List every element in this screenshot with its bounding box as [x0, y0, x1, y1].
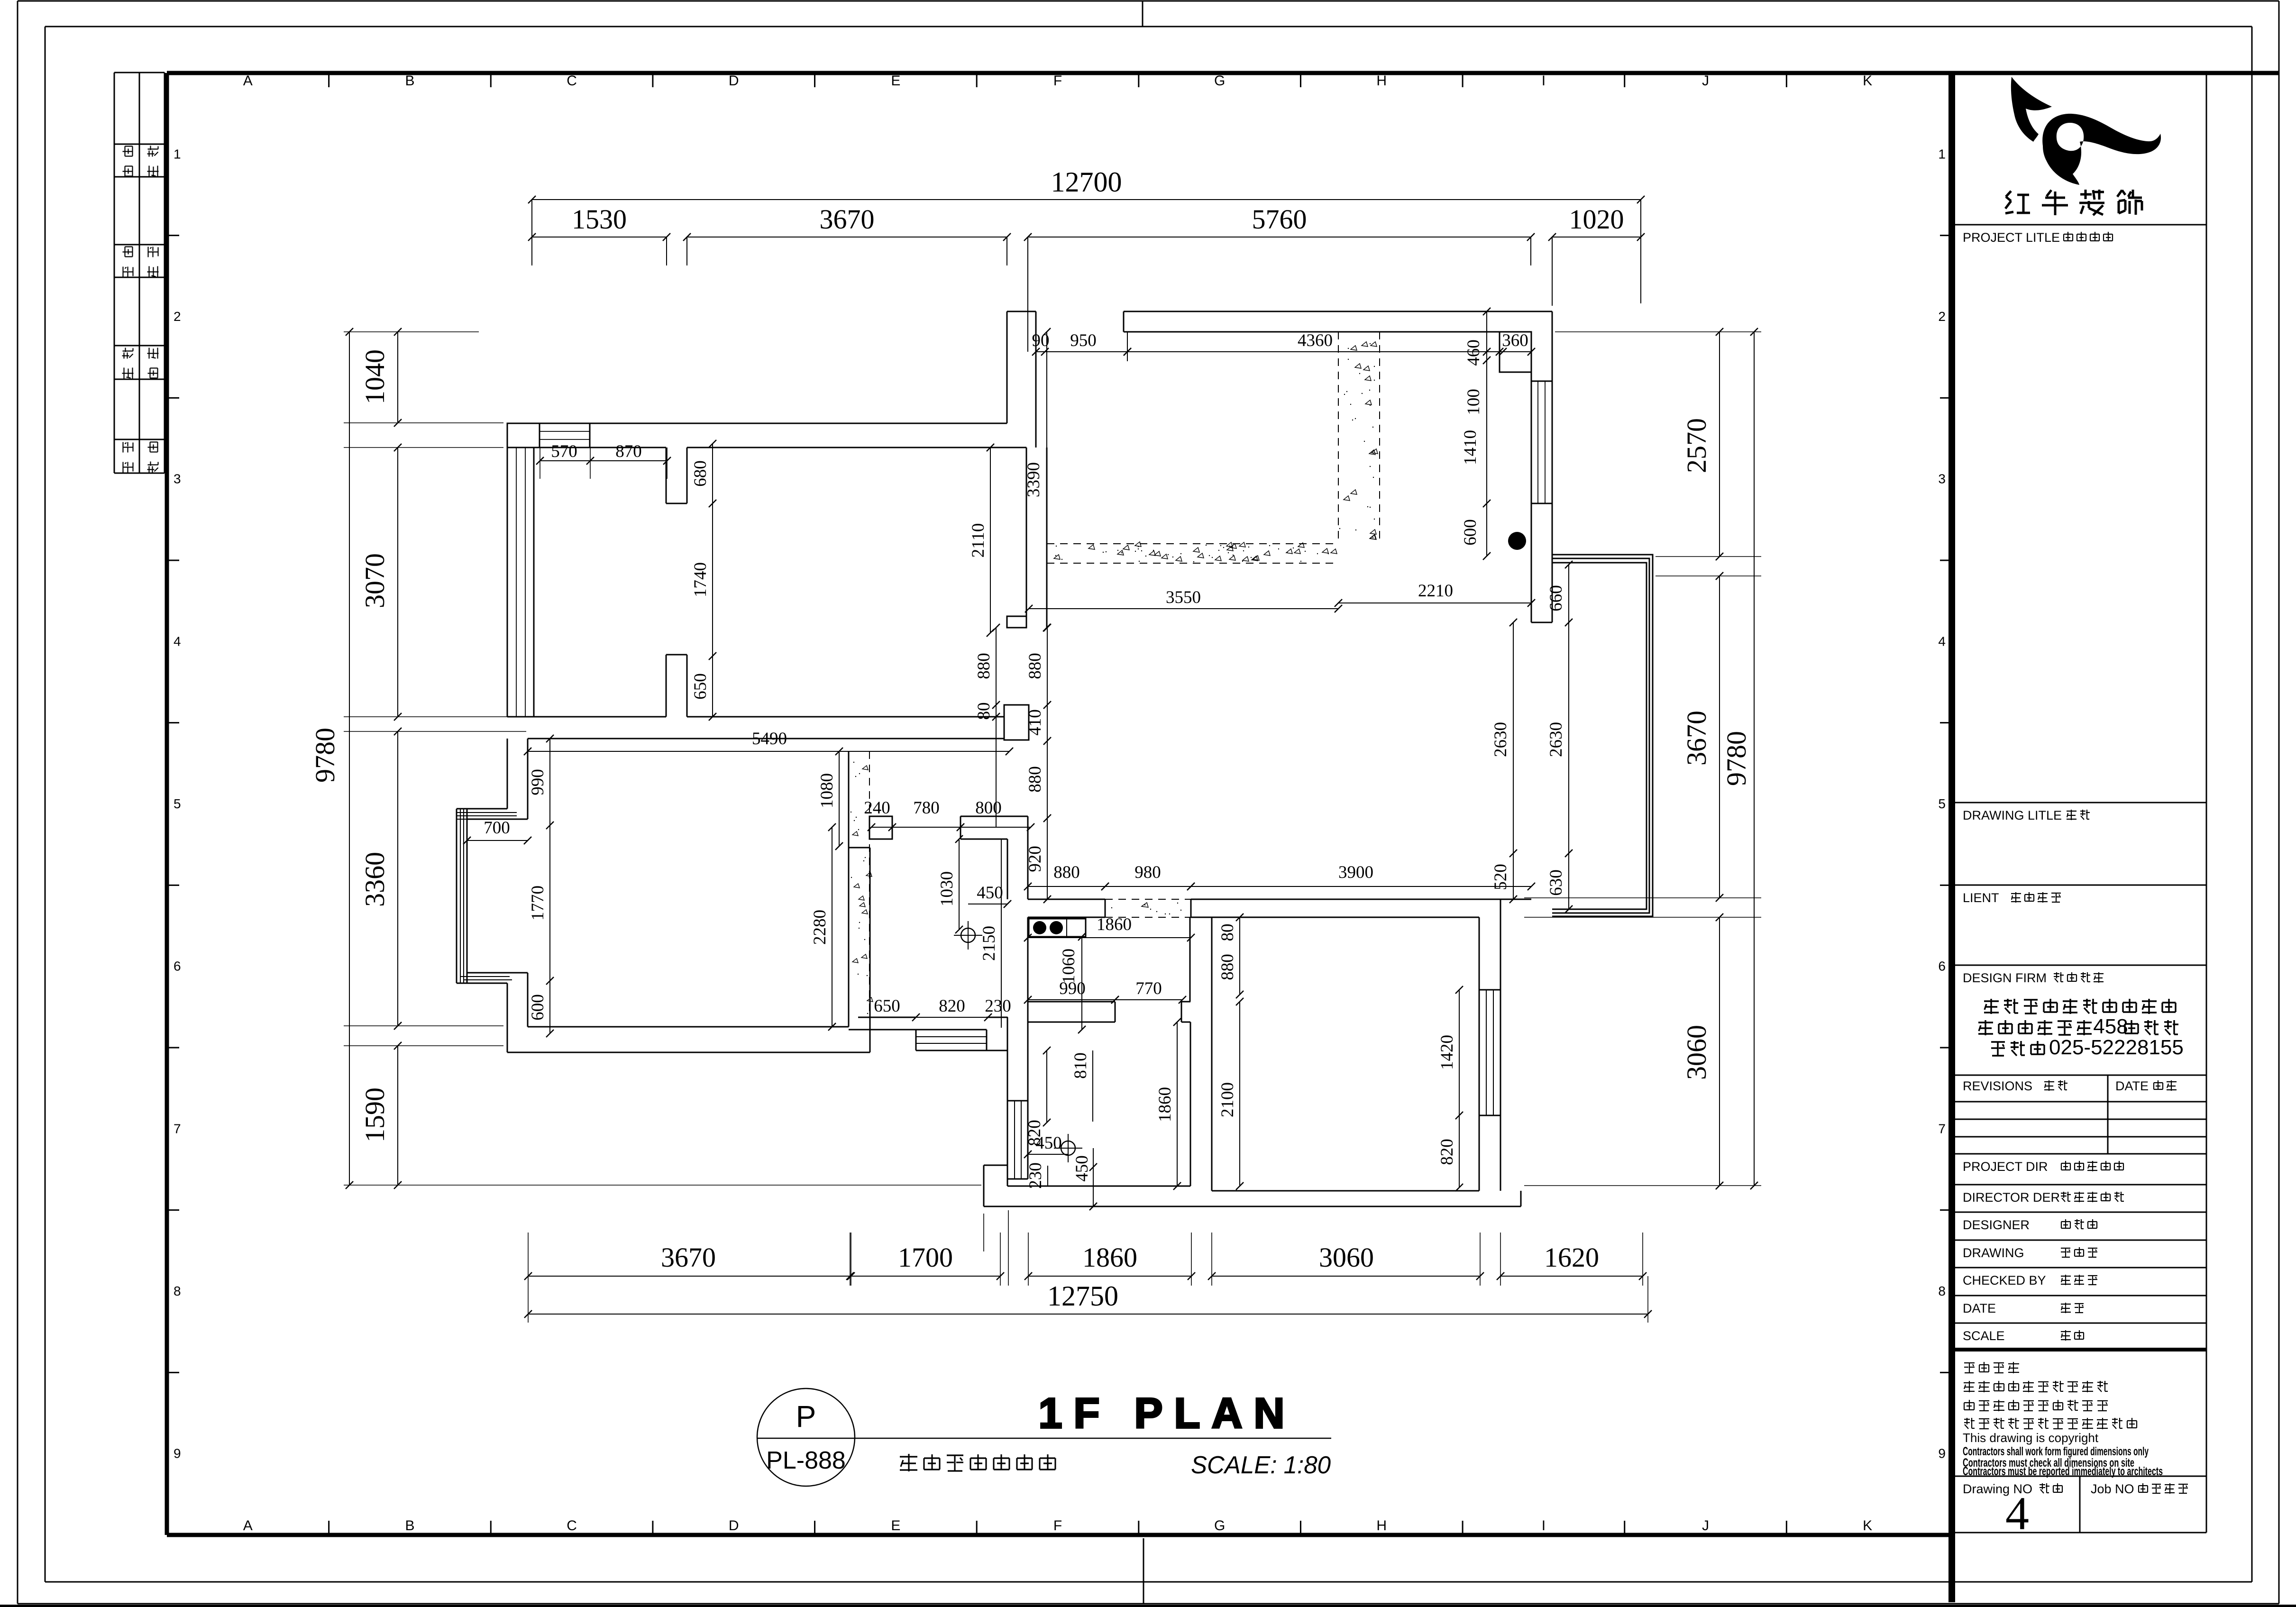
svg-text:650: 650: [874, 996, 900, 1016]
svg-text:1860: 1860: [1155, 1087, 1175, 1122]
svg-text:P: P: [796, 1399, 816, 1434]
svg-text:100: 100: [1464, 389, 1483, 415]
svg-text:12700: 12700: [1051, 166, 1122, 198]
svg-text:9780: 9780: [1721, 731, 1752, 786]
svg-text:4360: 4360: [1298, 331, 1333, 350]
svg-text:1860: 1860: [1082, 1242, 1137, 1273]
svg-text:LIENT: LIENT: [1963, 891, 1999, 905]
svg-text:PROJECT LITLE: PROJECT LITLE: [1963, 230, 2060, 245]
svg-text:3670: 3670: [661, 1242, 716, 1273]
svg-text:DESIGN FIRM: DESIGN FIRM: [1963, 971, 2047, 985]
svg-text:F: F: [1053, 1518, 1062, 1534]
svg-text:410: 410: [1025, 709, 1045, 736]
svg-text:B: B: [405, 73, 414, 89]
svg-text:2630: 2630: [1491, 722, 1510, 757]
svg-text:SCALE: SCALE: [1963, 1329, 2005, 1343]
svg-text:3060: 3060: [1681, 1025, 1712, 1080]
svg-text:600: 600: [1461, 519, 1480, 546]
svg-text:PROJECT DIR: PROJECT DIR: [1963, 1160, 2048, 1174]
svg-text:880: 880: [1218, 954, 1237, 980]
svg-text:Contractors must be reported i: Contractors must be reported immediately…: [1963, 1465, 2163, 1478]
svg-text:DESIGNER: DESIGNER: [1963, 1218, 2030, 1232]
svg-text:1420: 1420: [1437, 1035, 1457, 1070]
svg-text:C: C: [567, 73, 577, 89]
svg-text:D: D: [729, 1518, 739, 1534]
svg-text:6: 6: [1938, 959, 1946, 974]
svg-text:780: 780: [913, 798, 940, 818]
svg-text:J: J: [1702, 73, 1709, 89]
svg-text:800: 800: [975, 798, 1002, 818]
svg-text:1860: 1860: [1097, 915, 1132, 934]
svg-text:1F PLAN: 1F PLAN: [1038, 1390, 1296, 1437]
svg-text:980: 980: [1134, 863, 1161, 882]
svg-text:PL-888: PL-888: [766, 1447, 846, 1474]
svg-text:G: G: [1214, 1518, 1225, 1534]
svg-text:DRAWING: DRAWING: [1963, 1246, 2024, 1260]
svg-text:1740: 1740: [691, 562, 710, 597]
svg-text:450: 450: [1035, 1133, 1062, 1153]
svg-text:990: 990: [1059, 979, 1086, 998]
svg-text:2100: 2100: [1218, 1082, 1237, 1117]
svg-text:3: 3: [1938, 472, 1946, 486]
svg-text:2: 2: [174, 309, 181, 324]
svg-text:1530: 1530: [572, 204, 627, 235]
svg-text:3390: 3390: [1024, 462, 1043, 497]
svg-text:3070: 3070: [359, 553, 390, 608]
svg-text:570: 570: [551, 442, 577, 461]
svg-text:1080: 1080: [817, 773, 837, 808]
svg-text:025-52228155: 025-52228155: [2049, 1036, 2184, 1059]
svg-text:360: 360: [1502, 331, 1528, 350]
svg-text:B: B: [405, 1518, 414, 1534]
svg-text:6: 6: [174, 959, 181, 974]
svg-text:DIRECTOR DER: DIRECTOR DER: [1963, 1190, 2060, 1205]
svg-text:1060: 1060: [1059, 949, 1079, 984]
svg-text:DATE: DATE: [1963, 1301, 1996, 1315]
svg-text:4: 4: [174, 634, 181, 648]
svg-text:Job NO: Job NO: [2091, 1482, 2134, 1496]
svg-text:450: 450: [977, 883, 1003, 903]
svg-text:920: 920: [1025, 846, 1045, 872]
svg-text:450: 450: [1072, 1155, 1092, 1182]
svg-text:F: F: [1053, 73, 1062, 89]
svg-text:3: 3: [174, 472, 181, 486]
svg-text:2150: 2150: [979, 926, 999, 961]
svg-text:1410: 1410: [1461, 430, 1480, 465]
svg-text:8: 8: [174, 1284, 181, 1298]
svg-text:230: 230: [985, 996, 1011, 1016]
svg-text:5: 5: [1938, 796, 1946, 811]
svg-text:G: G: [1214, 73, 1225, 89]
svg-text:2280: 2280: [810, 910, 830, 945]
svg-text:80: 80: [974, 703, 994, 720]
svg-text:1700: 1700: [898, 1242, 953, 1273]
svg-text:12750: 12750: [1047, 1280, 1118, 1312]
svg-text:9: 9: [1938, 1446, 1946, 1461]
svg-text:820: 820: [1437, 1139, 1457, 1165]
svg-text:1020: 1020: [1569, 204, 1624, 235]
svg-text:630: 630: [1546, 869, 1566, 896]
svg-text:J: J: [1702, 1518, 1709, 1534]
svg-text:7: 7: [1938, 1121, 1946, 1136]
svg-text:460: 460: [1464, 339, 1483, 366]
svg-text:600: 600: [528, 994, 548, 1021]
svg-text:E: E: [891, 73, 900, 89]
svg-text:DATE: DATE: [2115, 1079, 2149, 1093]
svg-text:C: C: [567, 1518, 577, 1534]
svg-text:I: I: [1542, 1518, 1546, 1534]
svg-text:650: 650: [691, 673, 710, 700]
svg-text:2570: 2570: [1681, 418, 1712, 473]
svg-text:230: 230: [1026, 1162, 1045, 1189]
svg-text:820: 820: [939, 996, 965, 1016]
svg-text:H: H: [1376, 73, 1387, 89]
svg-text:I: I: [1542, 73, 1546, 89]
svg-text:2210: 2210: [1418, 581, 1453, 601]
svg-text:1040: 1040: [359, 349, 390, 404]
svg-text:1: 1: [1938, 146, 1946, 161]
svg-text:3670: 3670: [820, 204, 875, 235]
svg-text:9780: 9780: [310, 728, 340, 783]
svg-text:458: 458: [2093, 1015, 2128, 1038]
svg-text:870: 870: [615, 442, 642, 461]
svg-text:3060: 3060: [1319, 1242, 1374, 1273]
svg-text:810: 810: [1071, 1052, 1090, 1079]
svg-text:1030: 1030: [937, 871, 957, 906]
svg-text:1770: 1770: [528, 886, 548, 921]
svg-text:CHECKED BY: CHECKED BY: [1963, 1273, 2046, 1287]
svg-text:1590: 1590: [359, 1087, 390, 1142]
svg-text:5760: 5760: [1252, 204, 1307, 235]
svg-text:880: 880: [1025, 653, 1045, 679]
svg-text:4: 4: [1938, 634, 1946, 648]
svg-text:9: 9: [174, 1446, 181, 1461]
svg-text:A: A: [243, 1518, 253, 1534]
svg-text:E: E: [891, 1518, 900, 1534]
svg-text:3900: 3900: [1338, 863, 1373, 882]
svg-text:H: H: [1376, 1518, 1387, 1534]
svg-text:660: 660: [1546, 585, 1566, 612]
svg-text:DRAWING LITLE: DRAWING LITLE: [1963, 808, 2062, 822]
svg-text:880: 880: [1025, 766, 1045, 793]
svg-text:D: D: [729, 73, 739, 89]
svg-text:3360: 3360: [359, 852, 390, 907]
svg-text:REVISIONS: REVISIONS: [1963, 1079, 2032, 1093]
svg-text:SCALE: 1:80: SCALE: 1:80: [1191, 1452, 1331, 1479]
svg-text:7: 7: [174, 1121, 181, 1136]
svg-text:950: 950: [1070, 331, 1097, 350]
svg-text:990: 990: [528, 769, 548, 795]
svg-text:700: 700: [484, 818, 510, 838]
svg-text:K: K: [1863, 73, 1872, 89]
svg-text:1: 1: [174, 146, 181, 161]
svg-text:5490: 5490: [752, 729, 787, 749]
svg-text:4: 4: [2005, 1487, 2029, 1540]
svg-text:8: 8: [1938, 1284, 1946, 1298]
svg-text:2: 2: [1938, 309, 1946, 324]
svg-text:770: 770: [1135, 979, 1162, 998]
svg-text:This drawing is copyright: This drawing is copyright: [1963, 1431, 2099, 1445]
svg-text:80: 80: [1218, 924, 1237, 941]
svg-text:A: A: [243, 73, 253, 89]
svg-text:K: K: [1863, 1518, 1872, 1534]
svg-text:1620: 1620: [1544, 1242, 1599, 1273]
svg-text:2630: 2630: [1546, 722, 1566, 757]
svg-text:3670: 3670: [1681, 711, 1712, 766]
svg-text:3550: 3550: [1166, 588, 1201, 607]
svg-text:5: 5: [174, 796, 181, 811]
svg-text:2110: 2110: [969, 523, 988, 558]
svg-text:880: 880: [1053, 863, 1080, 882]
svg-text:880: 880: [974, 653, 994, 679]
svg-text:680: 680: [691, 460, 710, 487]
svg-text:240: 240: [864, 798, 890, 818]
